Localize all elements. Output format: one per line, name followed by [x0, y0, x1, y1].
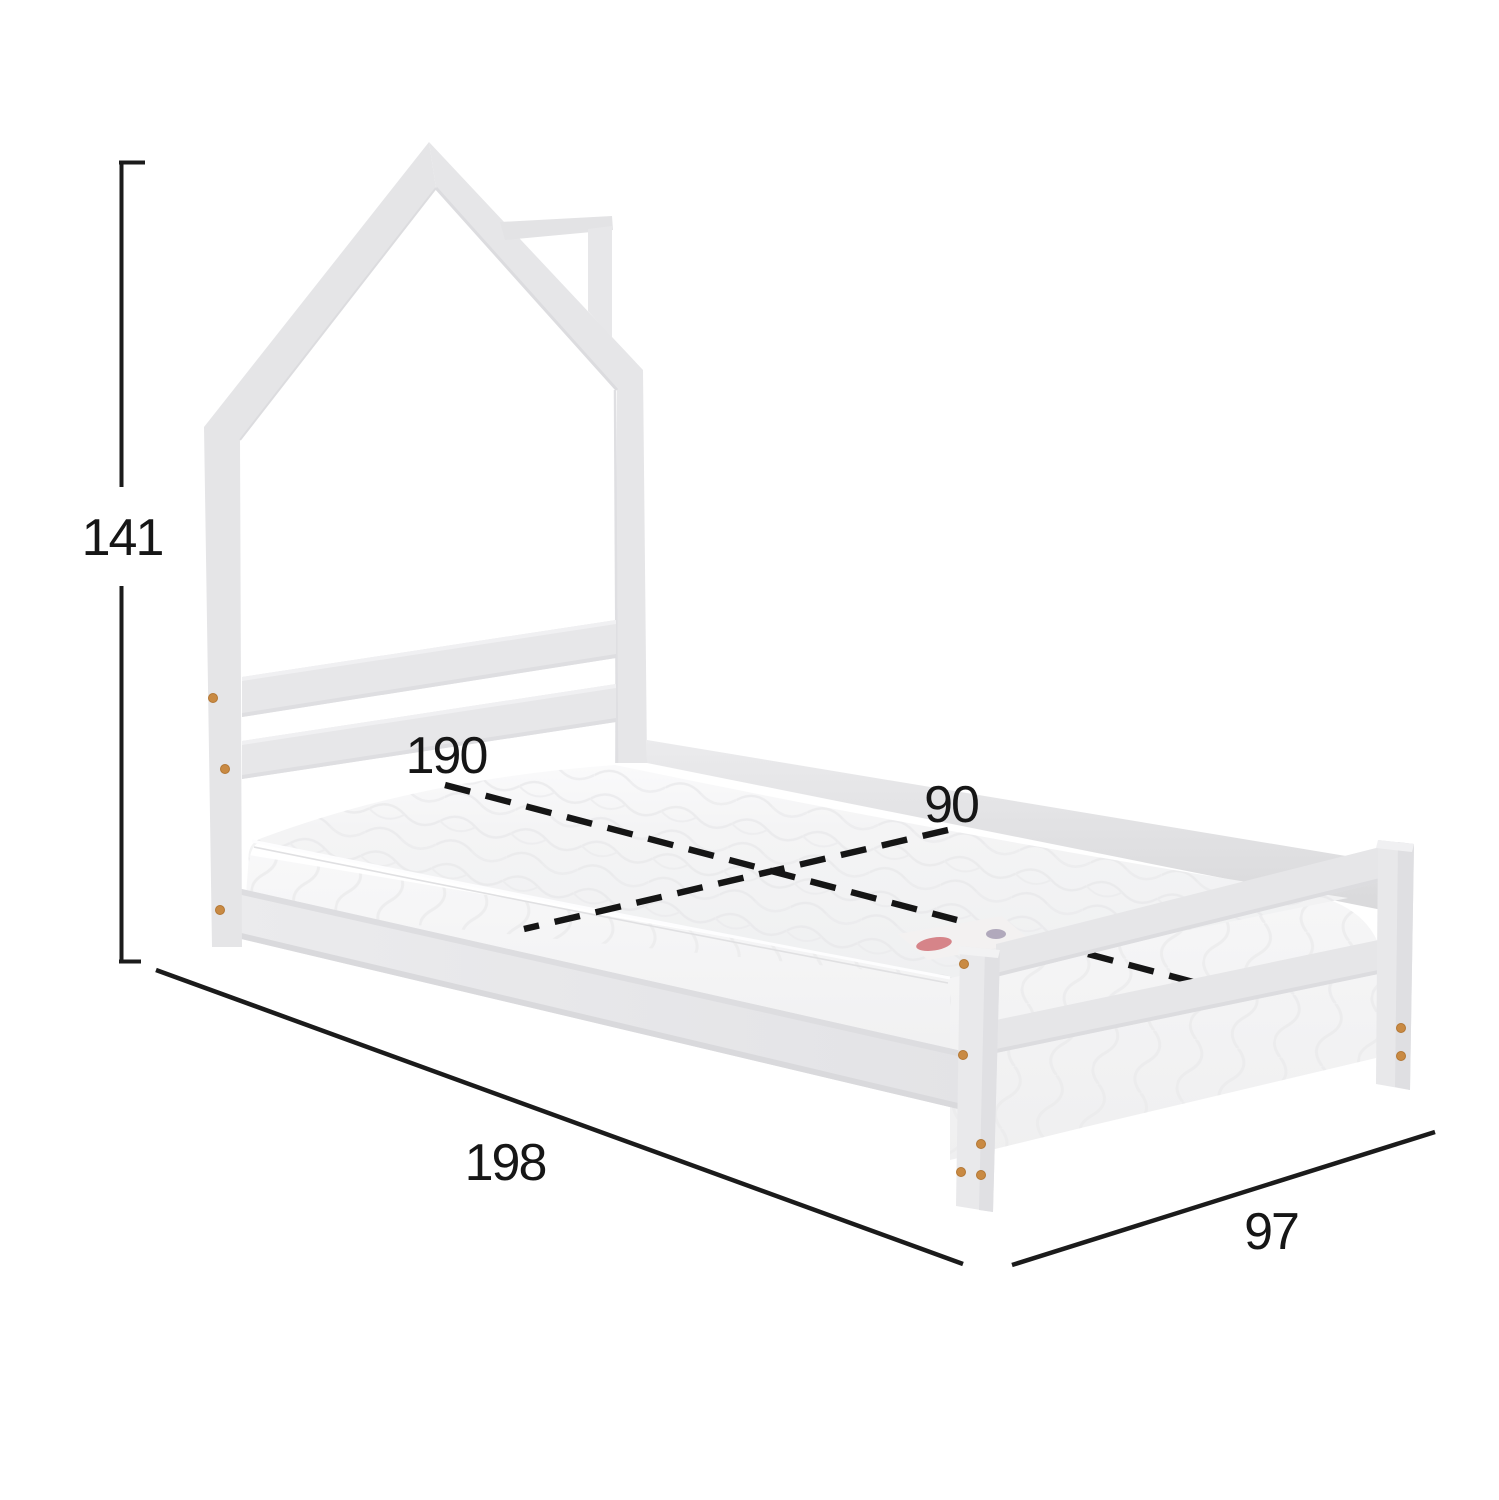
svg-text:141: 141 — [82, 509, 163, 567]
svg-text:198: 198 — [465, 1134, 546, 1192]
svg-text:90: 90 — [924, 776, 978, 834]
svg-text:190: 190 — [406, 727, 487, 785]
svg-text:97: 97 — [1244, 1203, 1298, 1261]
